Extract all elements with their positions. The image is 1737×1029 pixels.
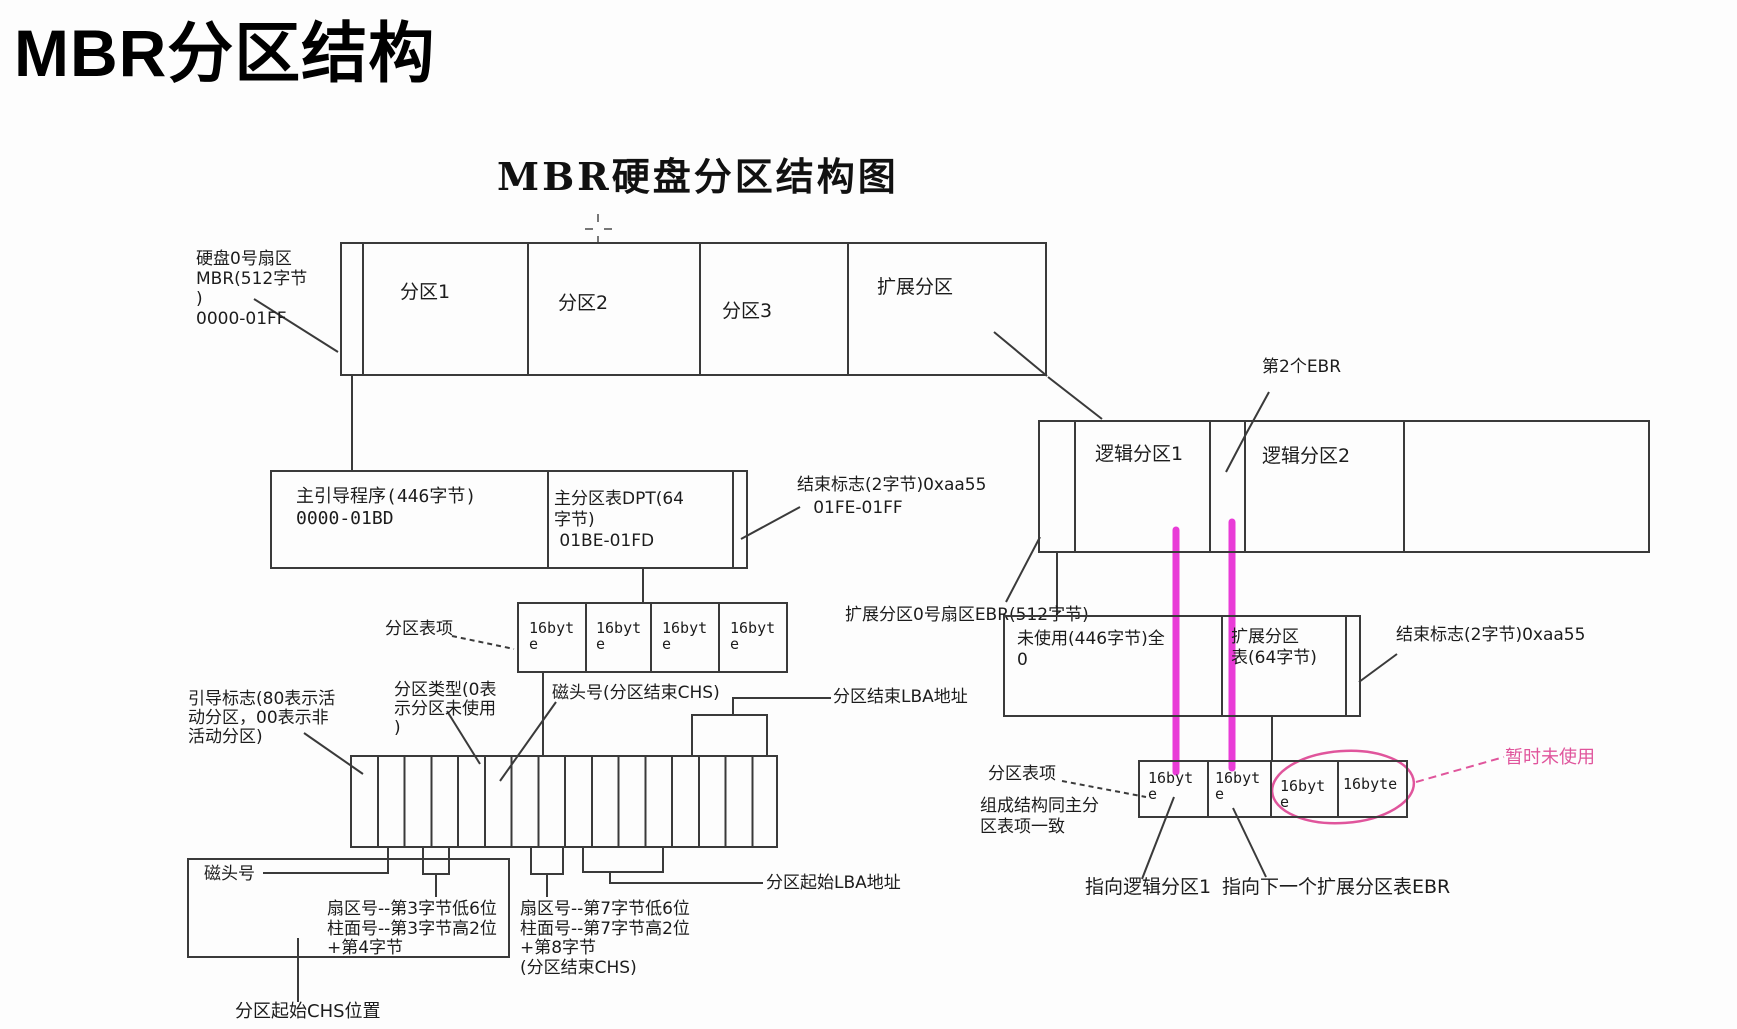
lba-end-label: 分区结束LBA地址: [833, 688, 968, 707]
temporarily-unused-label: 暂时未使用: [1505, 748, 1595, 767]
head-end-chs-label: 磁头号(分区结束CHS): [552, 684, 720, 703]
tonextebr-pointer-line: [1233, 808, 1266, 877]
ebr-detail-box: 未使用(446字节)全 0 扩展分区 表(64字节): [1003, 615, 1361, 717]
partition3-label: 分区3: [722, 296, 772, 323]
entry-byte-strip: [350, 755, 778, 848]
mbr-detail-box: 主引导程序(446字节) 0000-01BD 主分区表DPT(64 字节) 01…: [270, 470, 748, 569]
entry-row-label: 分区表项: [385, 620, 453, 639]
entry-cell-2: 16byt e: [596, 620, 641, 652]
ebr-entry-row-label: 分区表项: [988, 765, 1056, 784]
lbaend-stem: [733, 698, 831, 715]
points-to-logical1-label: 指向逻辑分区1: [1085, 878, 1211, 897]
ebr-entry-cell-3: 16byt e: [1280, 778, 1325, 810]
partition2-label: 分区2: [558, 288, 608, 315]
head-number-label: 磁头号: [204, 865, 255, 884]
entrylabel2-dashed-line: [1062, 781, 1146, 797]
cell-divider: [1337, 762, 1339, 816]
cell-divider: [1207, 762, 1209, 816]
entry-cell-3: 16byt e: [662, 620, 707, 652]
cell-divider: [585, 604, 587, 671]
ebr-end-flag-label: 结束标志(2字节)0xaa55: [1396, 626, 1585, 645]
cell-divider: [718, 604, 720, 671]
lbaend-bracket: [692, 715, 767, 755]
same-structure-label: 组成结构同主分 区表项一致: [980, 796, 1099, 838]
cell-divider: [1345, 617, 1347, 715]
cell-divider: [1074, 422, 1076, 551]
ext-table-label: 扩展分区 表(64字节): [1231, 627, 1317, 669]
boot-code-label: 主引导程序(446字节) 0000-01BD: [296, 486, 476, 530]
disk-sector-row-box: 分区1 分区2 分区3 扩展分区: [340, 242, 1047, 376]
second-ebr-label: 第2个EBR: [1262, 358, 1341, 377]
endflag2-pointer-line: [1359, 654, 1397, 682]
cell-divider: [547, 472, 549, 567]
cell-divider: [847, 244, 849, 374]
entry-cell-4: 16byt e: [730, 620, 775, 652]
cell-divider: [1221, 617, 1223, 715]
points-to-next-ebr-label: 指向下一个扩展分区表EBR: [1222, 878, 1450, 897]
partition1-label: 分区1: [400, 277, 450, 304]
ebrlabel-pointer-line: [1006, 537, 1040, 602]
logical-partition2-label: 逻辑分区2: [1262, 441, 1350, 468]
entrylabel-dashed-line: [452, 636, 514, 649]
ebr-entry-row-box: 16byt e 16byt e 16byt e 16byte: [1138, 760, 1408, 818]
cell-divider: [650, 604, 652, 671]
cell-divider: [1244, 422, 1246, 551]
cell-divider: [527, 244, 529, 374]
dpt-entry-row-box: 16byt e 16byt e 16byt e 16byt e: [517, 602, 788, 673]
dpt-label: 主分区表DPT(64 字节) 01BE-01FD: [554, 489, 684, 552]
entry-cell-1: 16byt e: [529, 620, 574, 652]
logical-partition1-label: 逻辑分区1: [1095, 439, 1183, 466]
cell-divider: [1403, 422, 1405, 551]
extpart-to-ebr-diagonal-b: [1048, 377, 1102, 419]
endflag-pointer-line: [741, 507, 800, 539]
mbr-diagram-canvas: MBR分区结构 MBR硬盘分区结构图: [0, 0, 1737, 1029]
sector7-bytes-label: 扇区号--第7字节低6位 柱面号--第7字节高2位 +第8字节 (分区结束CHS…: [520, 900, 690, 978]
partition-type-label: 分区类型(0表 示分区未使用 ): [394, 681, 496, 738]
cell-divider: [362, 244, 364, 374]
unused-label-dashed-line: [1416, 757, 1504, 782]
sector3-bytes-label: 扇区号--第3字节低6位 柱面号--第3字节高2位 +第4字节: [327, 900, 497, 959]
cell-divider: [1209, 422, 1211, 551]
cell-divider: [699, 244, 701, 374]
cell-divider: [1270, 762, 1272, 816]
cursor-crosshair-icon: [585, 214, 612, 244]
boot-flag-label: 引导标志(80表示活 动分区，00表示非 活动分区): [188, 690, 335, 747]
sector7-bracket: [531, 848, 563, 897]
ebr-unused-label: 未使用(446字节)全 0: [1017, 629, 1165, 671]
lba-start-label: 分区起始LBA地址: [766, 874, 901, 893]
extended-partition-label: 扩展分区: [877, 272, 953, 299]
lbastart-bracket: [583, 848, 763, 883]
end-flag-label: 结束标志(2字节)0xaa55 01FE-01FF: [797, 474, 986, 520]
ebr-entry-cell-4: 16byte: [1343, 776, 1397, 792]
extended-partition-row-box: 逻辑分区1 逻辑分区2: [1038, 420, 1650, 553]
cell-divider: [732, 472, 734, 567]
ebr-entry-cell-1: 16byt e: [1148, 770, 1193, 802]
ebr-entry-cell-2: 16byt e: [1215, 770, 1260, 802]
disk-sector0-label: 硬盘0号扇区 MBR(512字节 ) 0000-01FF: [196, 249, 307, 329]
chs-start-label: 分区起始CHS位置: [235, 1002, 381, 1021]
